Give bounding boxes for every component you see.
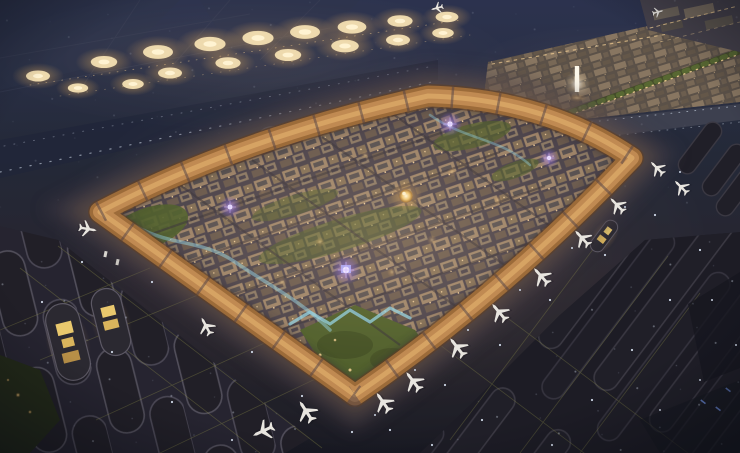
aerial-render [0,0,740,453]
render-canvas [0,0,740,453]
vignette [0,0,740,453]
